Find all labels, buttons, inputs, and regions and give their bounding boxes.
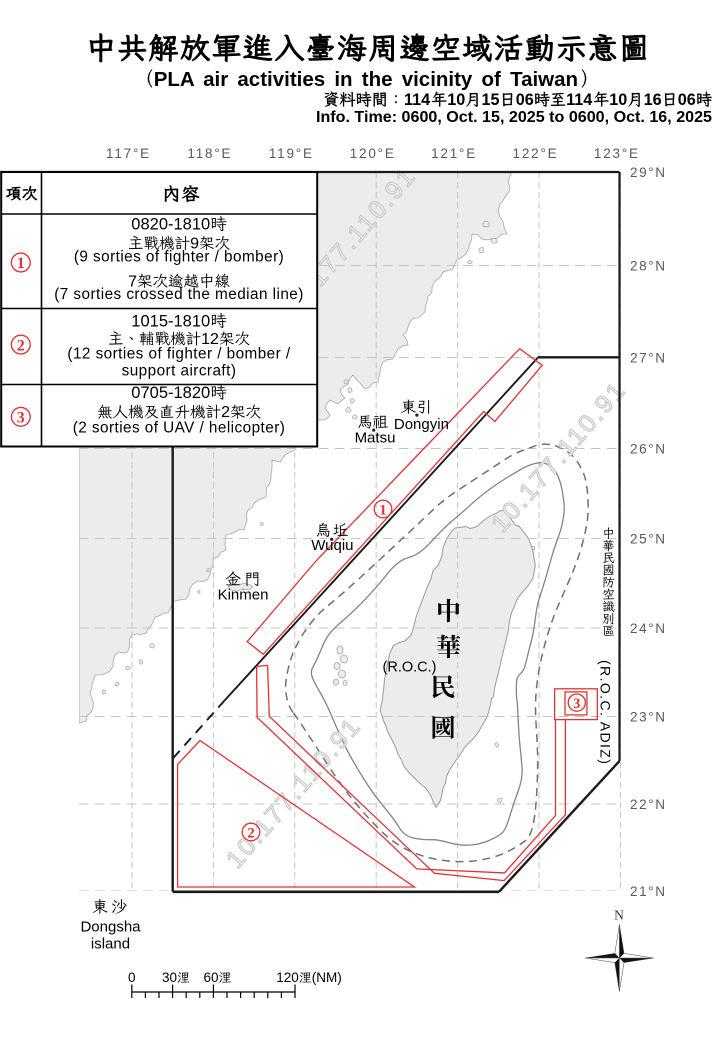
svg-text:2: 2 — [221, 404, 230, 421]
svg-text:10: 10 — [447, 91, 465, 109]
svg-text:support aircraft): support aircraft) — [122, 362, 237, 379]
svg-text:(12 sorties of fighter / bombe: (12 sorties of fighter / bomber / — [67, 346, 290, 363]
svg-text:1015-1810: 1015-1810 — [131, 312, 210, 330]
svg-text:Matsu: Matsu — [355, 430, 396, 447]
svg-text:27°N: 27°N — [630, 350, 667, 365]
svg-text:Dongsha: Dongsha — [80, 919, 141, 936]
svg-text:15: 15 — [482, 91, 500, 109]
svg-text:26°N: 26°N — [630, 441, 667, 456]
svg-text:N: N — [614, 908, 624, 923]
svg-text:06: 06 — [678, 91, 696, 109]
svg-text:(2 sorties of UAV / helicopter: (2 sorties of UAV / helicopter) — [73, 420, 286, 437]
svg-text:60: 60 — [204, 970, 219, 985]
svg-text:24°N: 24°N — [630, 621, 667, 636]
svg-text:114: 114 — [566, 91, 592, 109]
svg-text:10: 10 — [609, 91, 627, 109]
svg-text:06: 06 — [516, 91, 534, 109]
svg-text:118°E: 118°E — [187, 146, 232, 161]
svg-text:23°N: 23°N — [630, 709, 667, 724]
svg-text:3: 3 — [573, 696, 580, 712]
svg-text:3: 3 — [17, 410, 25, 427]
svg-text:29°N: 29°N — [630, 165, 667, 180]
svg-text:120: 120 — [276, 970, 299, 985]
svg-text:0: 0 — [128, 970, 136, 985]
svg-text:0820-1810: 0820-1810 — [131, 216, 210, 234]
svg-text:Info. Time: 0600, Oct. 15, 202: Info. Time: 0600, Oct. 15, 2025 to 0600,… — [316, 108, 712, 126]
svg-text:(R.O.C. ADIZ): (R.O.C. ADIZ) — [598, 660, 614, 765]
svg-text:120°E: 120°E — [350, 146, 396, 161]
svg-text:island: island — [91, 936, 130, 953]
svg-text:114: 114 — [404, 91, 430, 109]
svg-text:Kinmen: Kinmen — [218, 587, 269, 604]
svg-text:(9 sorties of fighter / bomber: (9 sorties of fighter / bomber) — [74, 249, 284, 266]
svg-text:117°E: 117°E — [106, 146, 151, 161]
svg-text:(NM): (NM) — [312, 970, 342, 985]
svg-text:PLA air activities in the vici: PLA air activities in the vicinity of Ta… — [154, 68, 578, 91]
svg-text:Wuqiu: Wuqiu — [311, 537, 353, 554]
svg-text:25°N: 25°N — [630, 531, 667, 546]
svg-text:22°N: 22°N — [630, 797, 667, 812]
svg-text:Dongyin: Dongyin — [394, 416, 449, 433]
svg-text:(7 sorties crossed the median: (7 sorties crossed the median line) — [54, 286, 304, 303]
svg-text:121°E: 121°E — [431, 146, 477, 161]
svg-text:122°E: 122°E — [513, 146, 559, 161]
svg-text:21°N: 21°N — [630, 884, 667, 899]
svg-text:119°E: 119°E — [269, 146, 314, 161]
svg-text:0705-1820: 0705-1820 — [131, 384, 210, 402]
svg-text:30: 30 — [162, 970, 177, 985]
svg-text:16: 16 — [644, 91, 662, 109]
svg-text:123°E: 123°E — [594, 146, 640, 161]
svg-text:(R.O.C.): (R.O.C.) — [383, 660, 437, 676]
svg-text:2: 2 — [17, 337, 25, 354]
svg-text:2: 2 — [247, 825, 255, 841]
svg-text:1: 1 — [17, 255, 25, 272]
svg-text:1: 1 — [379, 502, 387, 518]
svg-text:28°N: 28°N — [630, 258, 667, 273]
